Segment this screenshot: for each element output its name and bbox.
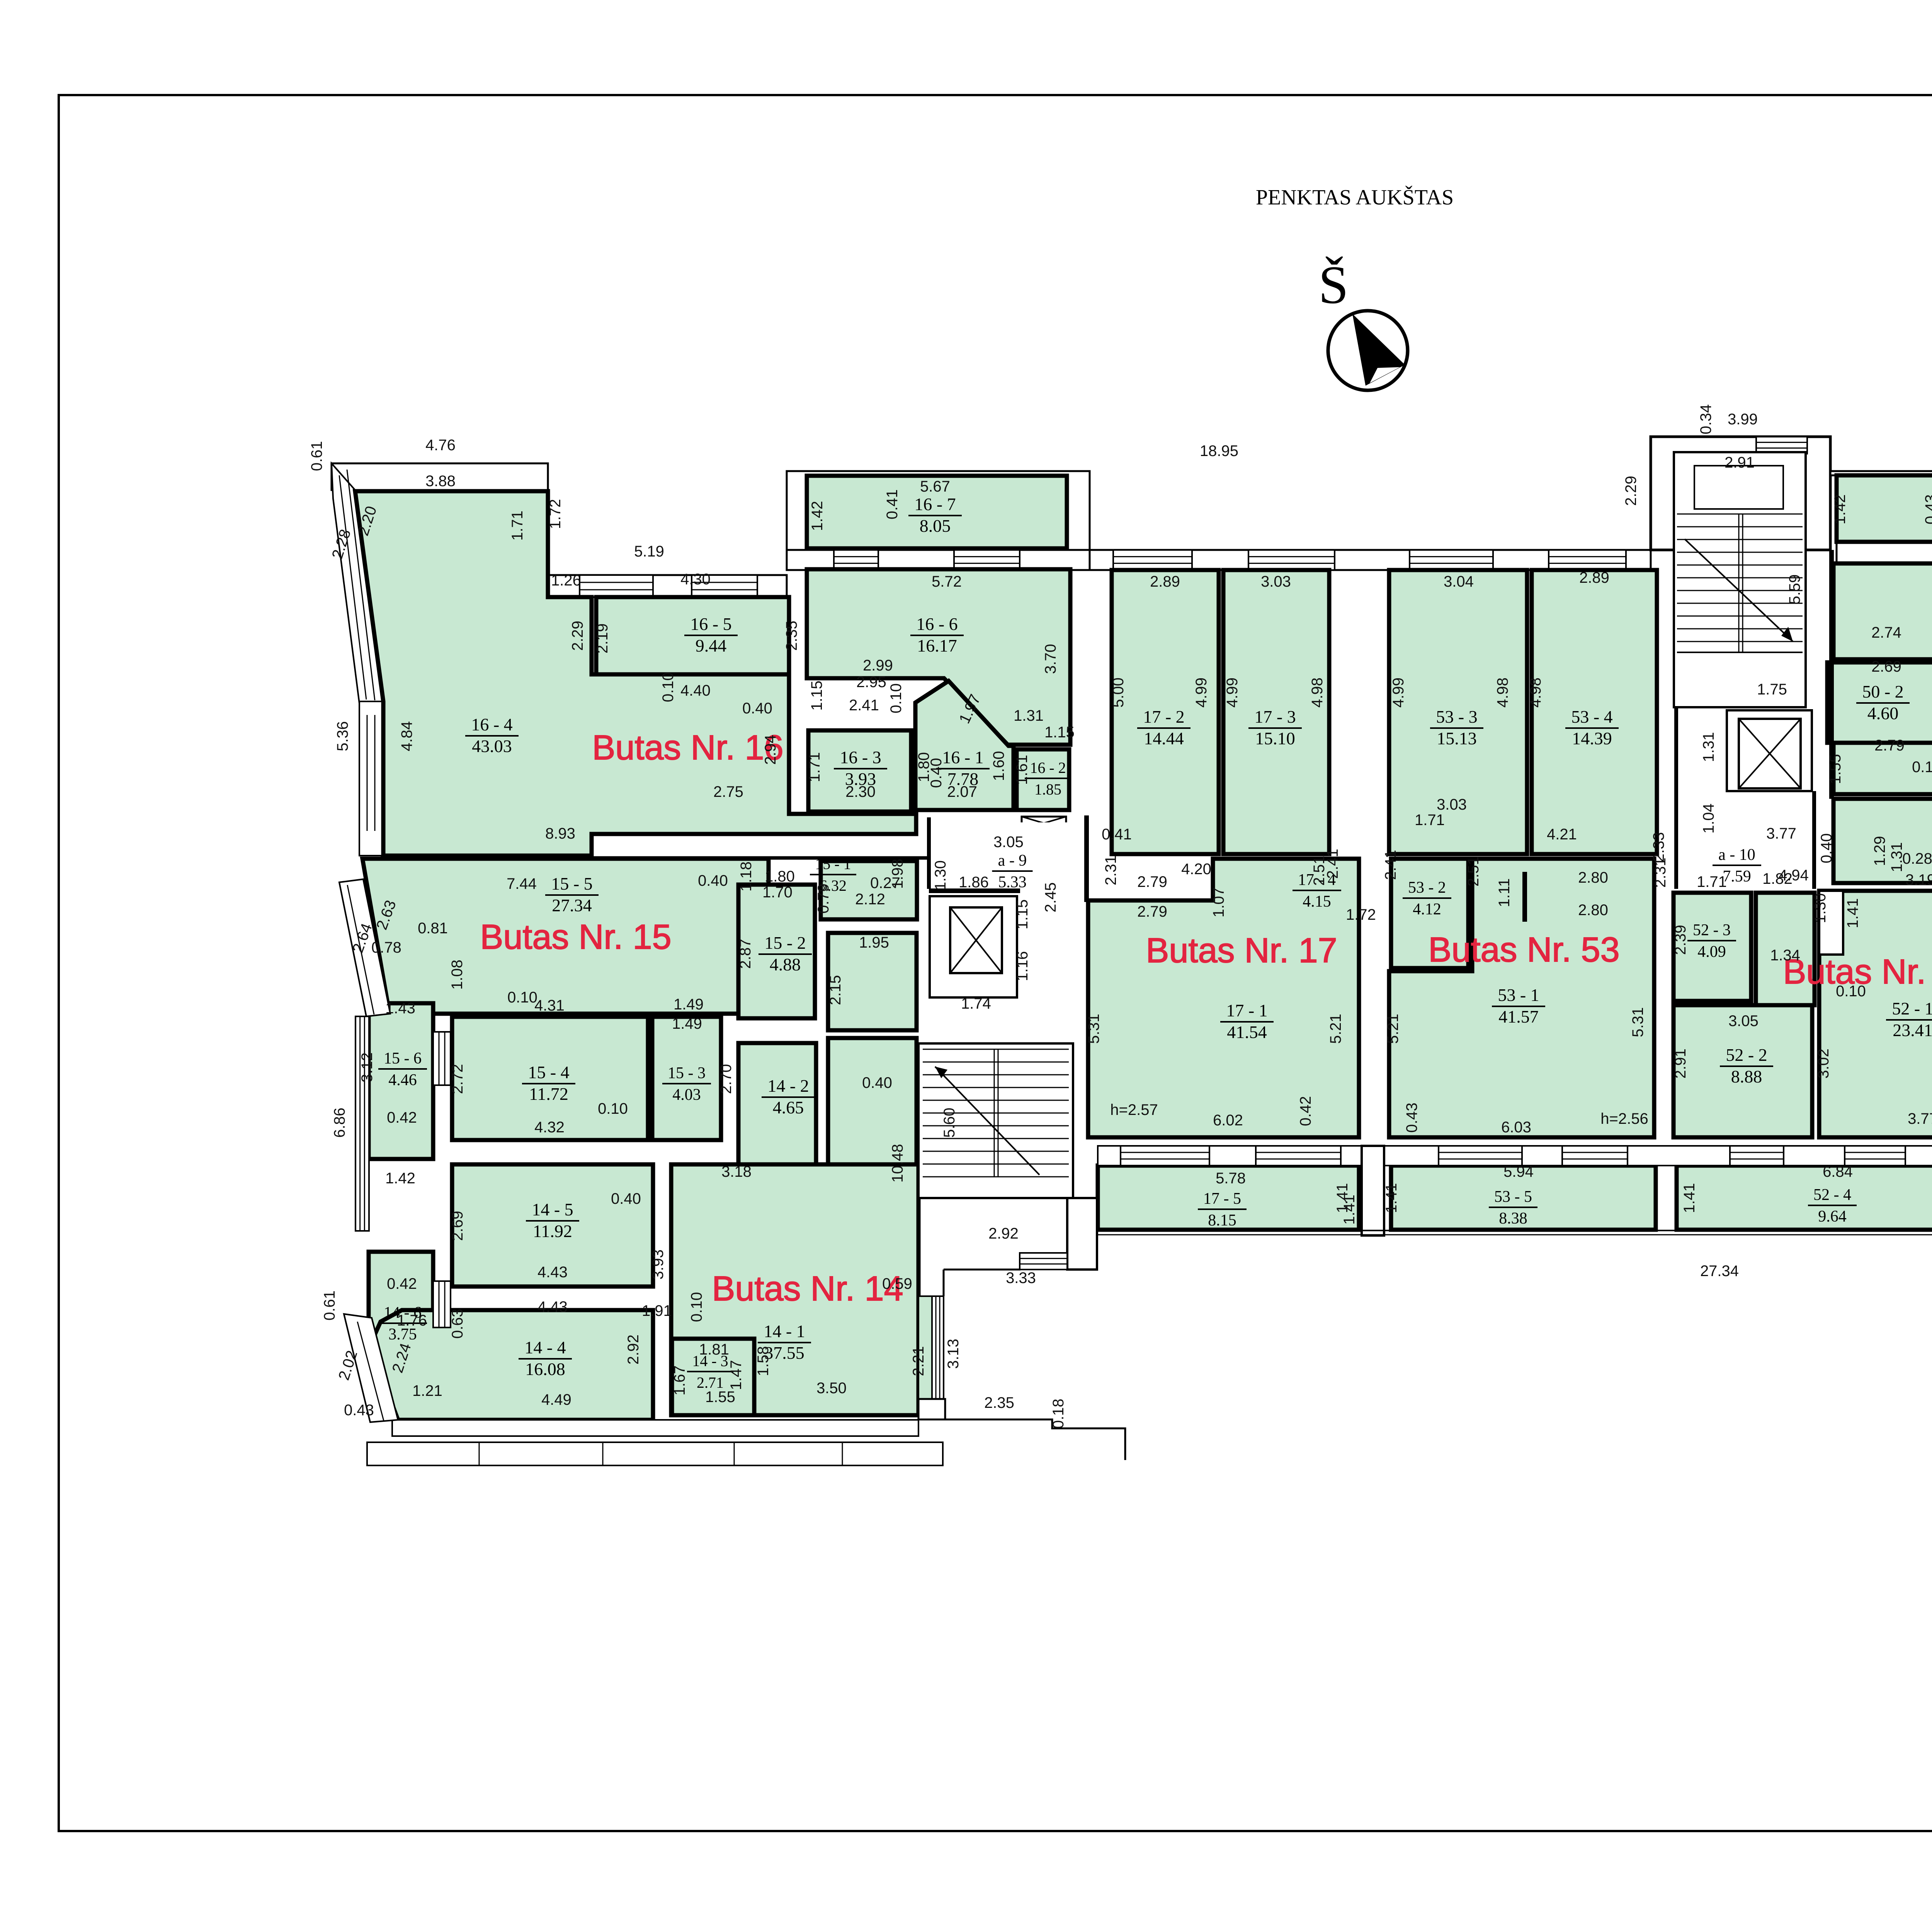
svg-text:4.30: 4.30	[680, 571, 711, 588]
svg-text:15 - 5: 15 - 5	[551, 874, 592, 893]
svg-text:0.43: 0.43	[1922, 494, 1932, 524]
svg-text:11.92: 11.92	[533, 1221, 572, 1241]
svg-text:0.40: 0.40	[698, 872, 728, 889]
svg-text:3.99: 3.99	[1728, 411, 1758, 428]
svg-text:5.33: 5.33	[998, 873, 1027, 891]
svg-text:3.50: 3.50	[816, 1380, 847, 1397]
svg-text:0.43: 0.43	[1403, 1103, 1420, 1133]
svg-text:11.72: 11.72	[529, 1084, 568, 1104]
svg-text:1.41: 1.41	[1844, 898, 1861, 928]
svg-text:1.42: 1.42	[809, 501, 826, 531]
svg-text:15 - 3: 15 - 3	[668, 1064, 706, 1082]
svg-text:53 - 3: 53 - 3	[1436, 707, 1477, 727]
svg-text:1.11: 1.11	[1496, 878, 1513, 907]
svg-text:2.19: 2.19	[594, 623, 611, 654]
svg-text:1.21: 1.21	[412, 1382, 442, 1399]
svg-text:4.31: 4.31	[534, 997, 565, 1014]
svg-text:15.10: 15.10	[1255, 728, 1295, 748]
svg-text:4.40: 4.40	[680, 682, 711, 699]
svg-text:0.43: 0.43	[344, 1402, 374, 1419]
svg-text:4.99: 4.99	[1193, 677, 1210, 708]
svg-text:4.99: 4.99	[1390, 677, 1407, 708]
svg-text:4.65: 4.65	[773, 1098, 804, 1117]
svg-text:16.08: 16.08	[525, 1359, 565, 1379]
svg-text:2.75: 2.75	[713, 783, 743, 800]
svg-text:1.18: 1.18	[738, 861, 755, 892]
svg-text:2.99: 2.99	[863, 657, 893, 674]
svg-text:17 - 5: 17 - 5	[1203, 1190, 1241, 1208]
svg-text:2.74: 2.74	[1871, 624, 1901, 641]
svg-text:h=2.57: h=2.57	[1110, 1101, 1158, 1118]
svg-text:3.02: 3.02	[1815, 1048, 1832, 1079]
svg-text:2.39: 2.39	[1672, 925, 1689, 955]
svg-text:4.49: 4.49	[541, 1391, 571, 1408]
svg-text:52 - 1: 52 - 1	[1892, 999, 1932, 1018]
svg-text:1.49: 1.49	[672, 1015, 702, 1032]
svg-text:4.43: 4.43	[537, 1264, 568, 1281]
svg-text:14.39: 14.39	[1572, 728, 1612, 748]
svg-text:4.20: 4.20	[1181, 861, 1211, 878]
svg-text:6.86: 6.86	[331, 1108, 348, 1138]
svg-text:5.94: 5.94	[1503, 1163, 1534, 1180]
svg-text:27.34: 27.34	[552, 895, 592, 915]
svg-text:1.15: 1.15	[808, 681, 825, 711]
svg-text:0.18: 0.18	[1050, 1399, 1067, 1429]
svg-text:16 - 7: 16 - 7	[914, 494, 956, 514]
svg-text:18.95: 18.95	[1200, 442, 1238, 460]
svg-text:4.43: 4.43	[537, 1299, 568, 1316]
svg-text:a - 10: a - 10	[1718, 846, 1755, 864]
svg-text:15 - 2: 15 - 2	[764, 933, 806, 953]
svg-text:16.17: 16.17	[917, 636, 957, 655]
svg-text:0.10: 0.10	[507, 989, 537, 1006]
svg-text:1.55: 1.55	[705, 1389, 735, 1406]
svg-text:16 - 5: 16 - 5	[690, 614, 731, 634]
svg-text:14 - 5: 14 - 5	[532, 1200, 573, 1219]
svg-text:0.10: 0.10	[1912, 759, 1932, 776]
svg-text:2.92: 2.92	[988, 1225, 1019, 1242]
svg-text:1.31: 1.31	[1700, 732, 1717, 762]
svg-text:2.12: 2.12	[855, 891, 885, 908]
svg-text:8.05: 8.05	[920, 516, 951, 536]
svg-text:3.70: 3.70	[1042, 644, 1059, 674]
svg-text:5.31: 5.31	[1629, 1007, 1646, 1037]
svg-text:2.79: 2.79	[1137, 903, 1167, 920]
svg-text:0.34: 0.34	[1697, 404, 1714, 434]
svg-text:2.80: 2.80	[1578, 902, 1608, 919]
svg-text:2.41: 2.41	[1324, 849, 1341, 879]
svg-text:15 - 4: 15 - 4	[528, 1062, 569, 1082]
svg-text:0.41: 0.41	[884, 489, 901, 519]
svg-text:4.15: 4.15	[1303, 893, 1331, 910]
svg-text:4.46: 4.46	[388, 1071, 417, 1089]
svg-text:16 - 4: 16 - 4	[471, 715, 512, 734]
svg-text:0.10: 0.10	[598, 1100, 628, 1117]
svg-text:2.30: 2.30	[845, 783, 876, 800]
svg-text:4.98: 4.98	[1527, 677, 1544, 708]
svg-text:2.92: 2.92	[625, 1334, 642, 1365]
svg-text:1.07: 1.07	[1210, 887, 1227, 917]
svg-text:3.77: 3.77	[1766, 825, 1796, 842]
svg-text:2.89: 2.89	[1150, 573, 1180, 590]
svg-text:4.99: 4.99	[1224, 677, 1241, 708]
svg-text:1.42: 1.42	[1832, 494, 1849, 524]
svg-text:1.58: 1.58	[755, 1346, 772, 1376]
svg-text:1.16: 1.16	[1014, 951, 1031, 981]
svg-text:53 - 4: 53 - 4	[1571, 707, 1612, 727]
svg-text:0.28: 0.28	[1902, 850, 1932, 867]
svg-text:3.88: 3.88	[425, 473, 456, 490]
svg-text:1.29: 1.29	[1871, 836, 1888, 866]
svg-text:4.98: 4.98	[1494, 677, 1511, 708]
svg-text:1.55: 1.55	[1827, 754, 1844, 784]
svg-text:6.03: 6.03	[1501, 1119, 1531, 1136]
svg-text:0.63: 0.63	[449, 1309, 466, 1339]
svg-text:1.71: 1.71	[509, 511, 526, 541]
svg-text:1.72: 1.72	[547, 499, 564, 529]
svg-text:h=2.56: h=2.56	[1600, 1110, 1648, 1127]
svg-text:0.59: 0.59	[882, 1275, 912, 1292]
svg-text:1.43: 1.43	[385, 1000, 415, 1017]
svg-text:16 - 3: 16 - 3	[840, 747, 881, 767]
svg-text:2.07: 2.07	[947, 783, 977, 800]
svg-text:9.44: 9.44	[696, 636, 727, 655]
svg-text:0.42: 0.42	[387, 1275, 417, 1292]
svg-text:41.54: 41.54	[1227, 1022, 1267, 1042]
svg-text:2.70: 2.70	[718, 1064, 735, 1094]
svg-text:1.81: 1.81	[699, 1341, 729, 1358]
svg-text:1.42: 1.42	[385, 1170, 415, 1187]
svg-text:1.30: 1.30	[932, 860, 949, 890]
svg-text:Butas Nr. 16: Butas Nr. 16	[592, 728, 783, 767]
svg-text:5.72: 5.72	[932, 573, 962, 590]
svg-text:PENKTAS AUKŠTAS: PENKTAS AUKŠTAS	[1256, 185, 1454, 209]
svg-text:4.60: 4.60	[1867, 703, 1899, 723]
svg-text:0.81: 0.81	[418, 920, 448, 937]
svg-text:4.98: 4.98	[1309, 677, 1326, 708]
svg-text:0.40: 0.40	[611, 1190, 641, 1207]
svg-text:1.04: 1.04	[1700, 803, 1717, 834]
svg-text:Butas Nr. 53: Butas Nr. 53	[1428, 931, 1619, 969]
svg-text:4.09: 4.09	[1697, 943, 1726, 961]
svg-text:Butas Nr. 17: Butas Nr. 17	[1146, 931, 1337, 970]
svg-text:4.12: 4.12	[1413, 900, 1441, 918]
svg-text:15 - 1: 15 - 1	[815, 855, 851, 873]
svg-text:1.67: 1.67	[671, 1365, 688, 1396]
svg-text:0.10: 0.10	[1836, 983, 1866, 1000]
svg-text:15.13: 15.13	[1437, 728, 1477, 748]
svg-text:3.13: 3.13	[945, 1339, 962, 1369]
svg-text:2.29: 2.29	[1622, 476, 1639, 506]
svg-text:1.71: 1.71	[1697, 873, 1727, 890]
svg-text:17 - 2: 17 - 2	[1143, 707, 1184, 727]
svg-text:1.82: 1.82	[1762, 870, 1793, 887]
svg-text:0.40: 0.40	[928, 758, 945, 788]
svg-text:1.86: 1.86	[959, 874, 989, 891]
svg-text:10.48: 10.48	[889, 1144, 906, 1183]
svg-text:14 - 4: 14 - 4	[524, 1338, 566, 1357]
svg-text:1.41: 1.41	[1383, 1183, 1400, 1213]
svg-text:1.61: 1.61	[1014, 755, 1031, 785]
svg-text:1.08: 1.08	[449, 960, 466, 990]
svg-text:5.78: 5.78	[1216, 1170, 1246, 1187]
svg-text:0.27: 0.27	[870, 875, 900, 892]
svg-text:2.15: 2.15	[827, 975, 844, 1005]
svg-text:1.41: 1.41	[1681, 1183, 1698, 1213]
svg-text:5.21: 5.21	[1384, 1014, 1401, 1044]
svg-text:1.76: 1.76	[397, 1312, 427, 1329]
svg-text:53 - 2: 53 - 2	[1408, 879, 1446, 897]
svg-text:4.88: 4.88	[770, 955, 801, 974]
svg-text:16 - 6: 16 - 6	[916, 614, 957, 634]
svg-text:3.33: 3.33	[1006, 1270, 1036, 1287]
svg-text:4.76: 4.76	[425, 437, 456, 454]
svg-text:2.69: 2.69	[1871, 658, 1901, 675]
svg-text:3.18: 3.18	[721, 1163, 752, 1180]
svg-text:0.78: 0.78	[371, 939, 401, 956]
svg-text:2.21: 2.21	[910, 1346, 927, 1376]
svg-text:Butas Nr. 14: Butas Nr. 14	[712, 1270, 903, 1308]
svg-text:14 - 1: 14 - 1	[764, 1321, 805, 1341]
svg-text:2.79: 2.79	[1874, 737, 1905, 754]
svg-text:16 - 1: 16 - 1	[942, 747, 983, 767]
svg-text:0.10: 0.10	[688, 1292, 705, 1322]
svg-text:3.03: 3.03	[1261, 573, 1291, 590]
svg-text:0.40: 0.40	[862, 1074, 892, 1091]
svg-text:1.72: 1.72	[1346, 906, 1376, 923]
svg-text:8.93: 8.93	[545, 825, 575, 842]
svg-text:53 - 1: 53 - 1	[1498, 985, 1539, 1005]
svg-text:1.49: 1.49	[673, 996, 704, 1013]
svg-text:5.31: 5.31	[1085, 1014, 1102, 1044]
svg-text:1.71: 1.71	[1415, 812, 1445, 829]
svg-text:3.04: 3.04	[1444, 573, 1474, 590]
svg-text:4.32: 4.32	[534, 1119, 565, 1136]
svg-text:2.31: 2.31	[1652, 858, 1669, 888]
svg-text:7.59: 7.59	[1723, 868, 1751, 885]
svg-text:43.03: 43.03	[472, 736, 512, 756]
svg-text:14.44: 14.44	[1144, 728, 1184, 748]
svg-text:4.21: 4.21	[1547, 826, 1577, 843]
svg-text:5.19: 5.19	[634, 543, 664, 560]
svg-text:0.40: 0.40	[1818, 833, 1835, 863]
svg-text:1.70: 1.70	[762, 884, 793, 901]
svg-text:2.41: 2.41	[849, 697, 879, 714]
svg-text:1.31: 1.31	[1014, 707, 1044, 724]
svg-text:5.00: 5.00	[1110, 677, 1127, 708]
svg-text:1.60: 1.60	[990, 751, 1007, 781]
svg-text:1.34: 1.34	[1770, 947, 1800, 964]
svg-text:8.15: 8.15	[1208, 1212, 1236, 1229]
svg-text:2.41: 2.41	[1382, 850, 1399, 880]
svg-text:2.51: 2.51	[1465, 856, 1482, 887]
svg-text:5.59: 5.59	[1786, 574, 1803, 604]
svg-text:17 - 1: 17 - 1	[1226, 1001, 1267, 1020]
svg-text:1.30: 1.30	[1812, 893, 1829, 923]
svg-text:0.40: 0.40	[742, 700, 772, 717]
svg-text:1.15: 1.15	[1014, 899, 1031, 929]
svg-text:2.69: 2.69	[449, 1211, 466, 1241]
svg-text:2.31: 2.31	[1102, 855, 1119, 885]
svg-text:2.80: 2.80	[1578, 869, 1608, 886]
svg-text:3.77: 3.77	[1908, 1110, 1932, 1127]
svg-text:6.02: 6.02	[1213, 1112, 1243, 1129]
svg-text:0.42: 0.42	[387, 1109, 417, 1126]
svg-text:52 - 3: 52 - 3	[1693, 921, 1731, 939]
svg-text:0.41: 0.41	[1102, 826, 1132, 843]
svg-text:3.05: 3.05	[993, 834, 1024, 851]
svg-text:2.91: 2.91	[1725, 454, 1755, 471]
svg-text:27.34: 27.34	[1700, 1263, 1739, 1280]
svg-text:5.60: 5.60	[941, 1108, 958, 1138]
svg-text:2.35: 2.35	[783, 621, 800, 651]
svg-text:2.95: 2.95	[856, 674, 886, 691]
svg-text:1.74: 1.74	[961, 995, 991, 1012]
svg-text:1.71: 1.71	[806, 752, 823, 782]
svg-text:8.38: 8.38	[1499, 1210, 1527, 1227]
svg-text:2.91: 2.91	[1672, 1048, 1689, 1079]
svg-text:52 - 2: 52 - 2	[1726, 1045, 1767, 1065]
svg-text:23.41: 23.41	[1893, 1020, 1932, 1040]
svg-text:2.79: 2.79	[1137, 873, 1167, 890]
svg-text:3.05: 3.05	[1728, 1013, 1759, 1030]
svg-text:1.80: 1.80	[765, 868, 795, 885]
svg-text:2.94: 2.94	[762, 735, 779, 765]
svg-text:1.15: 1.15	[1044, 724, 1075, 741]
svg-text:9.64: 9.64	[1818, 1208, 1847, 1225]
svg-text:1.41: 1.41	[1334, 1183, 1351, 1213]
svg-text:41.57: 41.57	[1498, 1007, 1539, 1026]
svg-text:2.87: 2.87	[737, 939, 754, 969]
svg-text:52 - 4: 52 - 4	[1813, 1186, 1851, 1204]
svg-text:7.44: 7.44	[507, 875, 537, 892]
svg-text:0.10: 0.10	[660, 672, 677, 702]
svg-text:2.45: 2.45	[1042, 882, 1059, 912]
svg-text:Š: Š	[1318, 255, 1349, 315]
svg-text:5.67: 5.67	[920, 478, 950, 495]
svg-text:1.47: 1.47	[728, 1360, 745, 1390]
svg-text:6.84: 6.84	[1823, 1163, 1853, 1180]
svg-text:0.61: 0.61	[308, 441, 325, 471]
svg-text:16 - 2: 16 - 2	[1030, 759, 1066, 776]
svg-text:1.95: 1.95	[859, 934, 889, 951]
svg-text:1.91: 1.91	[642, 1302, 672, 1319]
svg-text:4.84: 4.84	[398, 721, 415, 751]
svg-text:53 - 5: 53 - 5	[1494, 1188, 1532, 1206]
svg-text:0.79: 0.79	[815, 883, 832, 914]
svg-text:0.61: 0.61	[321, 1290, 338, 1321]
svg-text:1.26: 1.26	[551, 572, 581, 589]
svg-text:50 - 2: 50 - 2	[1862, 682, 1903, 701]
svg-text:Butas Nr. 15: Butas Nr. 15	[480, 918, 671, 956]
svg-text:0.10: 0.10	[888, 683, 905, 713]
svg-text:8.88: 8.88	[1731, 1067, 1762, 1086]
svg-text:17 - 3: 17 - 3	[1254, 707, 1296, 727]
svg-text:5.21: 5.21	[1327, 1014, 1344, 1044]
svg-text:2.72: 2.72	[449, 1064, 466, 1094]
svg-text:3.03: 3.03	[1437, 796, 1467, 813]
svg-text:3.19: 3.19	[1905, 871, 1932, 888]
svg-text:5.36: 5.36	[334, 721, 351, 751]
svg-text:0.42: 0.42	[1297, 1096, 1314, 1126]
svg-text:4.03: 4.03	[672, 1086, 701, 1104]
svg-text:1.75: 1.75	[1757, 681, 1787, 698]
svg-text:14 - 2: 14 - 2	[767, 1076, 809, 1096]
svg-text:2.35: 2.35	[984, 1394, 1014, 1411]
svg-text:2.89: 2.89	[1579, 569, 1609, 586]
svg-text:a - 9: a - 9	[998, 852, 1027, 870]
svg-text:3.12: 3.12	[359, 1052, 376, 1082]
svg-text:1.85: 1.85	[1034, 781, 1061, 798]
svg-text:15 - 6: 15 - 6	[384, 1050, 422, 1067]
svg-text:2.29: 2.29	[569, 621, 586, 651]
svg-text:3.93: 3.93	[650, 1249, 667, 1280]
